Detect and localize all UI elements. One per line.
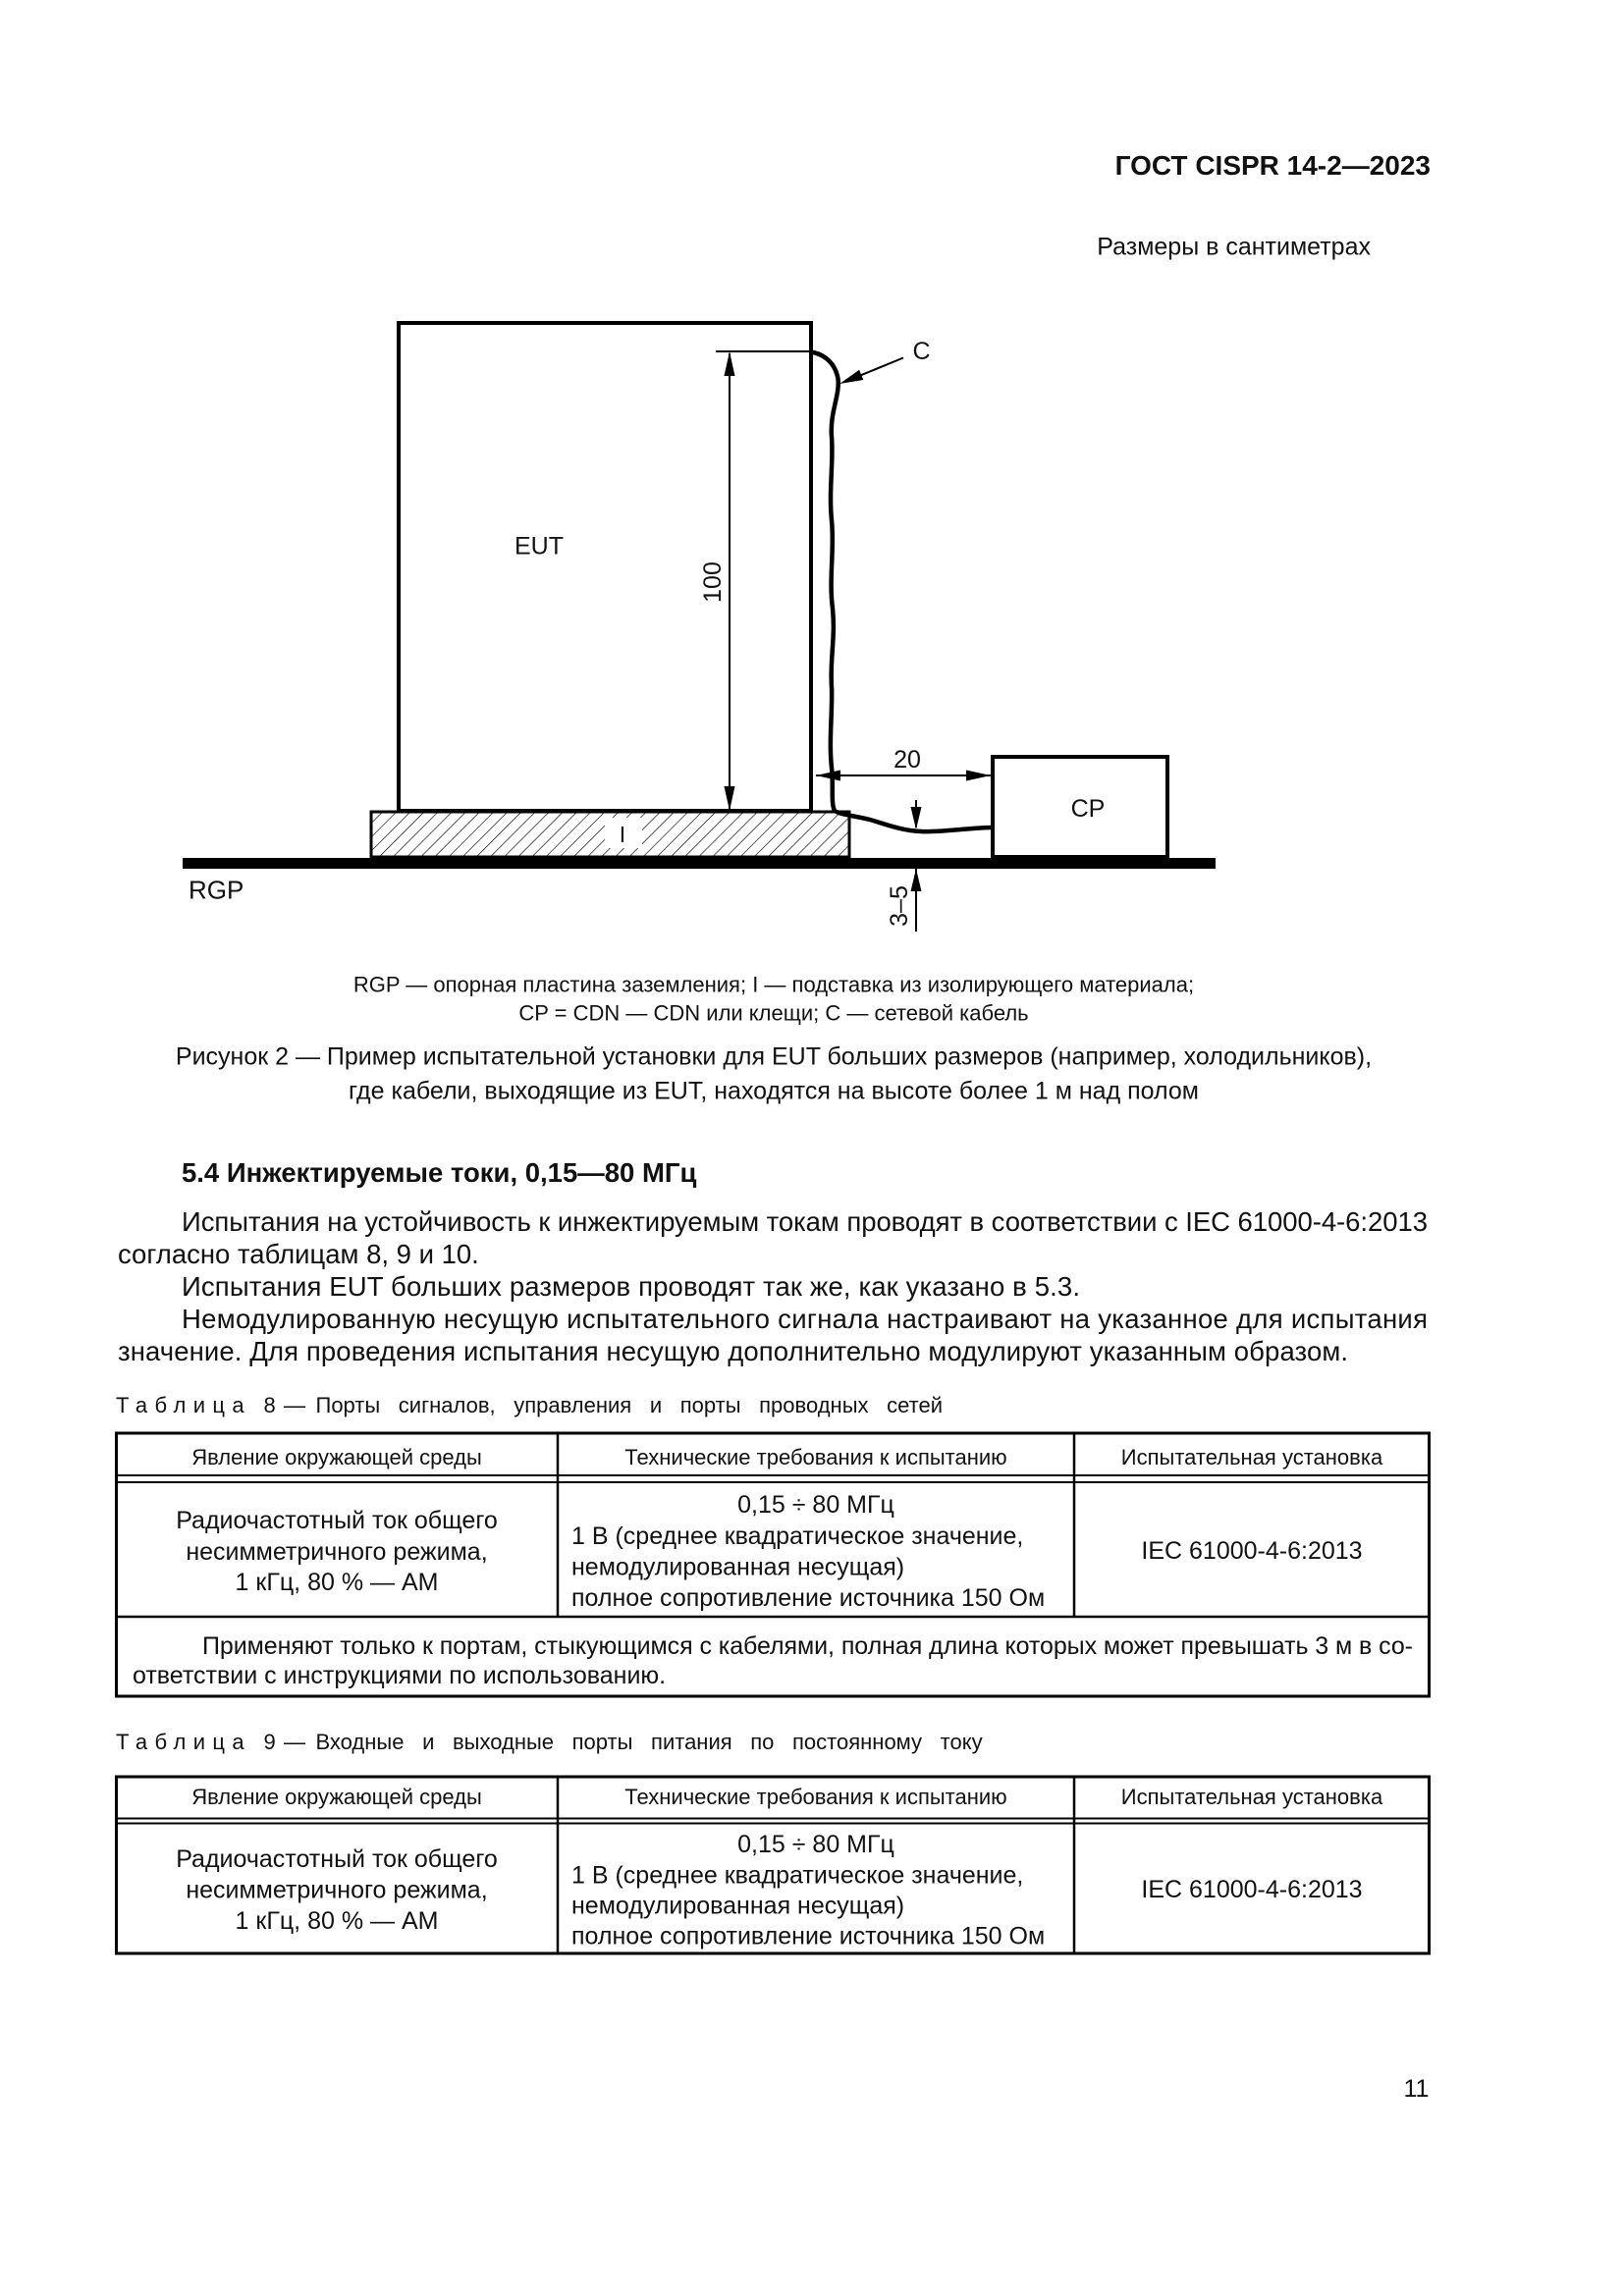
svg-text:IEC 61000-4-6:2013: IEC 61000-4-6:2013 xyxy=(1141,1876,1362,1903)
svg-text:полное сопротивление источника: полное сопротивление источника 150 Ом xyxy=(571,1923,1045,1950)
svg-text:EUT: EUT xyxy=(514,533,564,561)
svg-text:1 В (среднее квадратическое зн: 1 В (среднее квадратическое значение, xyxy=(571,1522,1023,1550)
svg-text:Радиочастотный ток общего: Радиочастотный ток общего xyxy=(176,1507,498,1534)
svg-text:Входные и выходные порты питан: Входные и выходные порты питания по пост… xyxy=(316,1730,983,1754)
svg-text:Явление окружающей среды: Явление окружающей среды xyxy=(191,1785,482,1809)
svg-text:Порты сигналов, управления и п: Порты сигналов, управления и порты прово… xyxy=(316,1393,943,1417)
svg-text:1 В (среднее квадратическое зн: 1 В (среднее квадратическое значение, xyxy=(571,1862,1023,1890)
svg-text:ответствии с инструкциями по и: ответствии с инструкциями по использован… xyxy=(133,1662,666,1689)
svg-text:RGP — опорная пластина заземле: RGP — опорная пластина заземления; I — п… xyxy=(353,973,1194,997)
svg-text:Размеры в сантиметрах: Размеры в сантиметрах xyxy=(1097,234,1371,261)
svg-text:немодулированная несущая): немодулированная несущая) xyxy=(571,1554,904,1581)
svg-text:—: — xyxy=(284,1730,305,1754)
svg-text:8: 8 xyxy=(264,1393,276,1417)
svg-text:—: — xyxy=(284,1393,305,1417)
svg-text:где кабели, выходящие из EUT,: где кабели, выходящие из EUT, находятся … xyxy=(349,1078,1199,1105)
svg-text:1 кГц, 80 % — АМ: 1 кГц, 80 % — АМ xyxy=(236,1907,439,1935)
svg-text:несимметричного режима,: несимметричного режима, xyxy=(186,1538,487,1566)
svg-text:3–5: 3–5 xyxy=(886,885,913,927)
svg-text:5.4 Инжектируемые токи, 0,15—8: 5.4 Инжектируемые токи, 0,15—80 МГц xyxy=(182,1157,696,1188)
svg-text:20: 20 xyxy=(893,746,921,774)
svg-text:значение. Для проведения испыт: значение. Для проведения испытания несущ… xyxy=(118,1336,1348,1366)
svg-text:Применяют только к портам, сты: Применяют только к портам, стыкующимся с… xyxy=(202,1632,1413,1660)
svg-text:Испытательная установка: Испытательная установка xyxy=(1121,1785,1383,1809)
svg-text:IEC 61000-4-6:2013: IEC 61000-4-6:2013 xyxy=(1141,1537,1362,1565)
svg-text:Таблица: Таблица xyxy=(116,1730,251,1754)
svg-text:Радиочастотный ток общего: Радиочастотный ток общего xyxy=(176,1845,498,1873)
svg-text:CP: CP xyxy=(1071,795,1106,823)
svg-text:согласно таблицам 8, 9 и 10.: согласно таблицам 8, 9 и 10. xyxy=(118,1239,479,1269)
svg-text:11: 11 xyxy=(1404,2075,1430,2103)
svg-text:Испытания на устойчивость к ин: Испытания на устойчивость к инжектируемы… xyxy=(182,1206,1428,1237)
svg-text:Немодулированную несущую испыт: Немодулированную несущую испытательного … xyxy=(182,1304,1428,1334)
svg-text:Рисунок 2 — Пример испытательн: Рисунок 2 — Пример испытательной установ… xyxy=(176,1043,1372,1071)
svg-text:0,15 ÷ 80 МГц: 0,15 ÷ 80 МГц xyxy=(737,1831,894,1858)
svg-text:C: C xyxy=(913,338,931,365)
svg-text:100: 100 xyxy=(699,561,727,603)
svg-text:I: I xyxy=(620,822,625,847)
svg-text:1 кГц, 80 % — АМ: 1 кГц, 80 % — АМ xyxy=(236,1569,439,1596)
svg-text:немодулированная несущая): немодулированная несущая) xyxy=(571,1893,904,1920)
svg-text:несимметричного режима,: несимметричного режима, xyxy=(186,1877,487,1904)
svg-text:Испытательная установка: Испытательная установка xyxy=(1121,1445,1383,1469)
svg-text:Явление окружающей среды: Явление окружающей среды xyxy=(191,1445,482,1469)
svg-text:0,15 ÷ 80 МГц: 0,15 ÷ 80 МГц xyxy=(737,1491,894,1519)
svg-text:9: 9 xyxy=(264,1730,276,1754)
svg-text:Испытания EUT больших размеров: Испытания EUT больших размеров проводят … xyxy=(182,1271,1080,1302)
svg-text:CP = CDN — CDN или клещи; C —: CP = CDN — CDN или клещи; C — сетевой ка… xyxy=(518,1001,1028,1026)
svg-text:RGP: RGP xyxy=(189,876,244,905)
svg-text:Технические требования к испыт: Технические требования к испытанию xyxy=(624,1785,1006,1809)
svg-text:Таблица: Таблица xyxy=(116,1393,251,1417)
svg-text:ГОСТ CISPR 14-2—2023: ГОСТ CISPR 14-2—2023 xyxy=(1115,150,1431,181)
svg-text:Технические требования к испыт: Технические требования к испытанию xyxy=(624,1445,1006,1469)
svg-text:полное сопротивление источника: полное сопротивление источника 150 Ом xyxy=(571,1584,1045,1612)
